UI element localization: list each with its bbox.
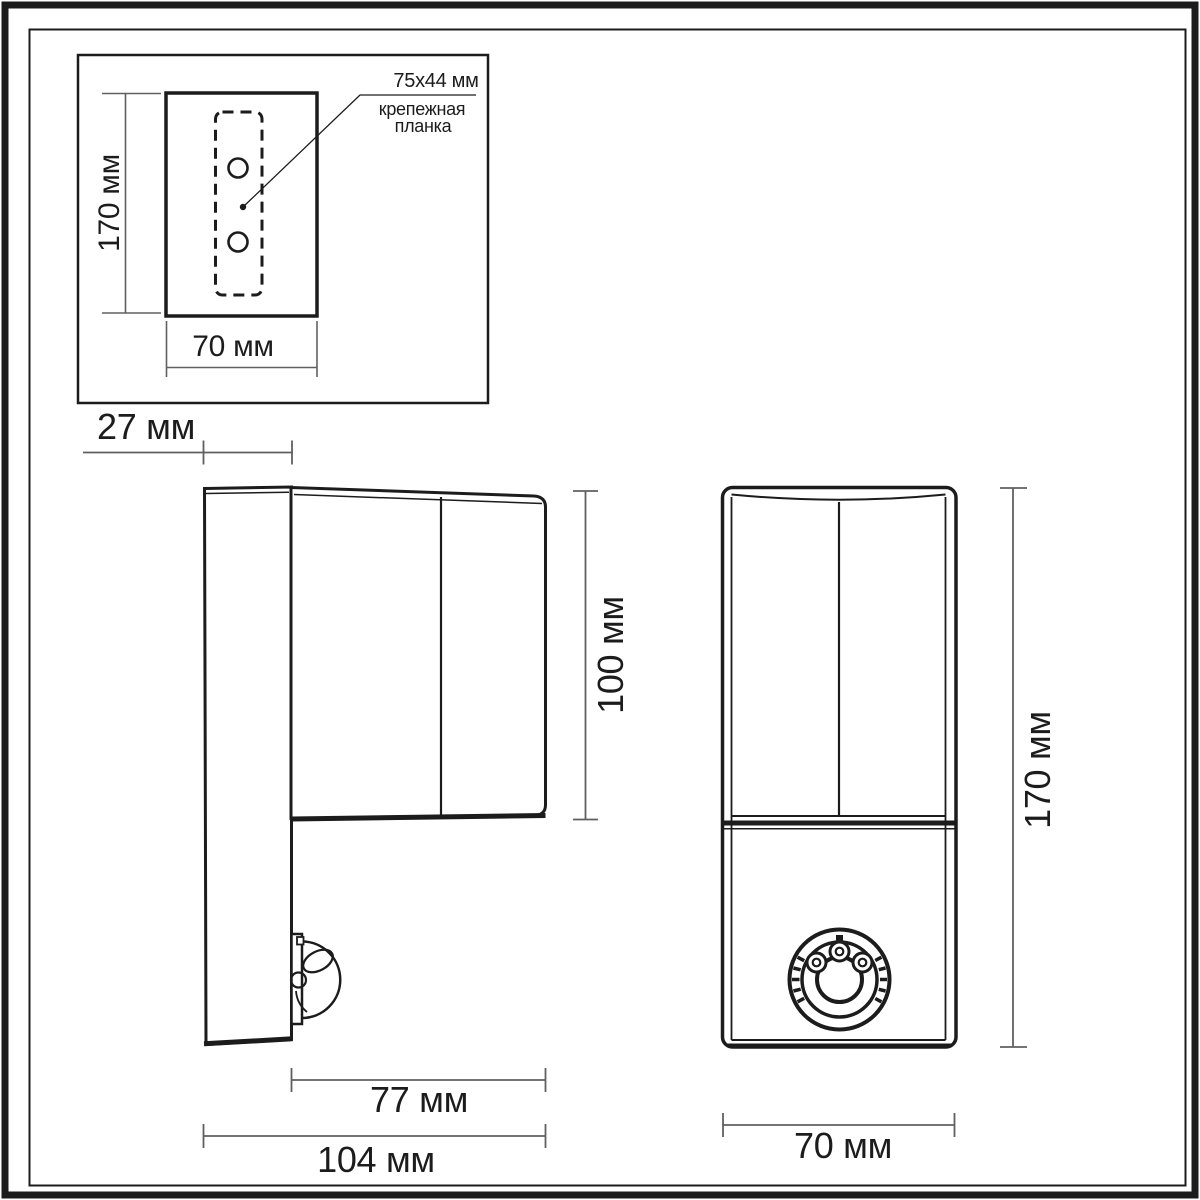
side-view — [83, 441, 598, 1149]
wall-plate — [205, 487, 292, 1045]
front-dim-width-label: 70 мм — [794, 1128, 892, 1164]
sensor-base-plate — [292, 934, 303, 1024]
front-view — [723, 488, 1028, 1138]
dimension-drawing-canvas: 75x44 мм крепежная планка 170 мм 70 мм 2… — [0, 0, 1200, 1200]
sensor-top-notch — [297, 937, 304, 945]
dial-knob-left — [807, 953, 826, 972]
dial-knob-top-ring — [830, 942, 849, 961]
inset-dim-height-label: 170 мм — [95, 154, 125, 252]
side-dim-total-depth-label: 104 мм — [317, 1142, 435, 1178]
sensor-side-profile — [291, 934, 340, 1024]
side-dim-body-depth-label: 77 мм — [370, 1082, 468, 1118]
side-dim-body-height-label: 100 мм — [593, 596, 629, 714]
lamp-body-bottom-edge — [292, 816, 546, 820]
sensor-dome — [302, 942, 340, 1019]
lamp-body-side — [291, 488, 546, 819]
dial-knob-left-ring — [807, 953, 826, 972]
front-dim-height-label: 170 мм — [1020, 711, 1056, 829]
inset-annotation-text-line2: планка — [395, 117, 452, 135]
dial-knob-top — [830, 942, 849, 961]
inset-annotation-size-label: 75x44 мм — [393, 71, 478, 91]
side-dim-plate-depth-label: 27 мм — [97, 409, 195, 445]
dial-knob-right-ring — [853, 953, 872, 972]
dial-knob-right — [853, 953, 872, 972]
inset-dim-width-label: 70 мм — [192, 332, 273, 362]
